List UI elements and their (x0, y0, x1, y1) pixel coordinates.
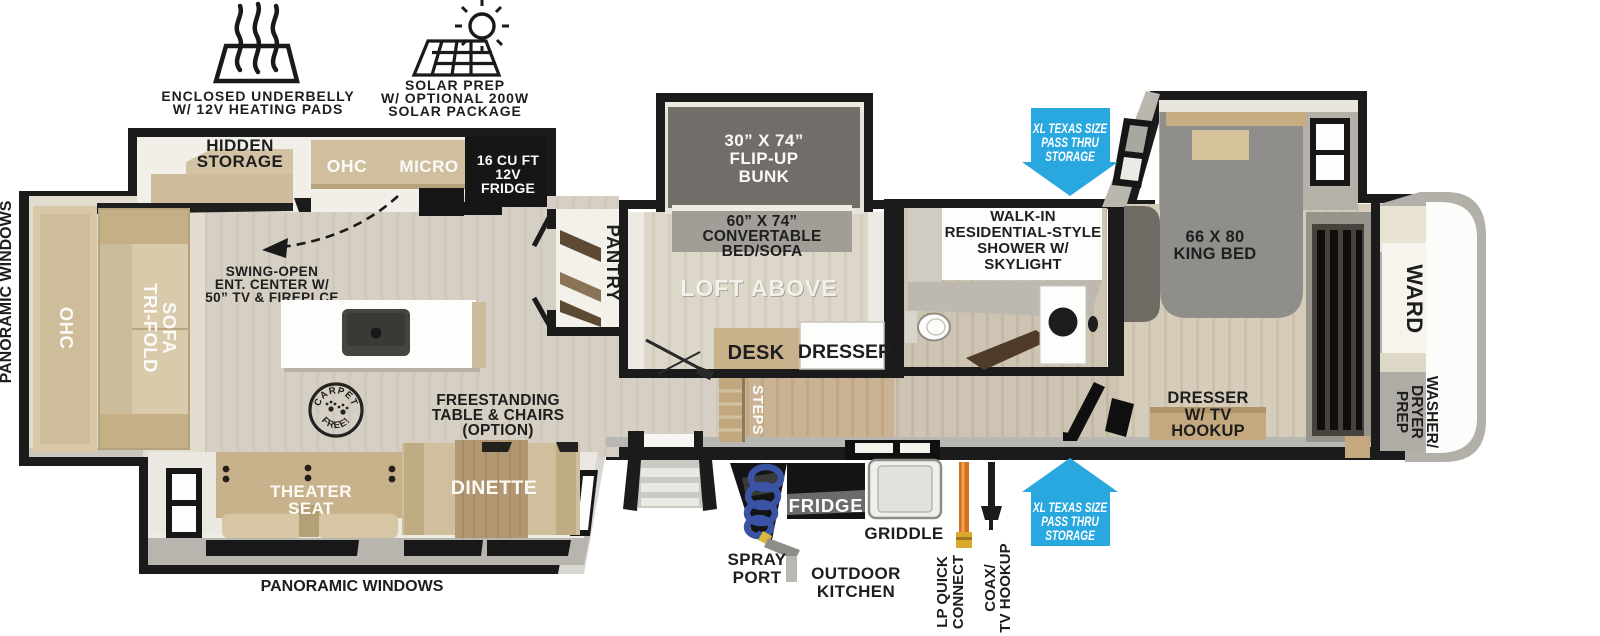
svg-text:BED/SOFA: BED/SOFA (722, 243, 803, 260)
svg-text:HOOKUP: HOOKUP (1171, 422, 1245, 440)
svg-text:PANORAMIC WINDOWS: PANORAMIC WINDOWS (0, 200, 15, 383)
svg-text:OHC: OHC (56, 307, 77, 350)
svg-text:PORT: PORT (733, 568, 782, 587)
svg-text:30” X 74”: 30” X 74” (724, 131, 803, 150)
svg-text:MICRO: MICRO (399, 157, 458, 176)
svg-text:LOFT ABOVE: LOFT ABOVE (680, 275, 837, 301)
svg-text:PANORAMIC WINDOWS: PANORAMIC WINDOWS (261, 578, 444, 595)
svg-text:GRIDDLE: GRIDDLE (864, 524, 943, 543)
svg-text:STORAGE: STORAGE (197, 152, 284, 171)
svg-text:RESIDENTIAL-STYLE: RESIDENTIAL-STYLE (945, 224, 1102, 241)
svg-text:SEAT: SEAT (288, 499, 334, 518)
svg-text:STORAGE: STORAGE (1045, 527, 1095, 543)
svg-text:WALK-IN: WALK-IN (990, 208, 1056, 225)
svg-text:SOFA: SOFA (159, 302, 180, 354)
svg-text:SOLAR PACKAGE: SOLAR PACKAGE (388, 103, 522, 119)
svg-text:FRIDGE: FRIDGE (789, 495, 864, 516)
svg-text:DRESSER: DRESSER (798, 341, 892, 363)
svg-text:OHC: OHC (327, 156, 367, 176)
svg-text:BUNK: BUNK (739, 167, 790, 186)
svg-text:TV HOOKUP: TV HOOKUP (997, 543, 1014, 632)
svg-text:TRI-FOLD: TRI-FOLD (140, 283, 161, 373)
svg-text:CONNECT: CONNECT (950, 555, 967, 629)
svg-text:DRESSER: DRESSER (1167, 389, 1248, 407)
svg-text:SPRAY: SPRAY (727, 550, 786, 569)
svg-text:FRIDGE: FRIDGE (481, 180, 535, 196)
svg-text:PREP: PREP (1393, 391, 1410, 433)
svg-text:WARD: WARD (1402, 264, 1427, 333)
svg-text:(OPTION): (OPTION) (462, 422, 533, 439)
svg-text:OUTDOOR: OUTDOOR (811, 564, 901, 583)
svg-text:SKYLIGHT: SKYLIGHT (984, 256, 1061, 273)
svg-text:KITCHEN: KITCHEN (817, 582, 895, 601)
svg-text:KING BED: KING BED (1173, 245, 1256, 263)
svg-text:STORAGE: STORAGE (1045, 148, 1095, 164)
svg-text:SHOWER W/: SHOWER W/ (977, 240, 1069, 257)
svg-text:DINETTE: DINETTE (451, 477, 537, 499)
svg-text:DESK: DESK (728, 342, 785, 364)
svg-text:W/ 12V HEATING PADS: W/ 12V HEATING PADS (173, 101, 344, 117)
svg-text:FLIP-UP: FLIP-UP (730, 149, 799, 168)
svg-text:STEPS: STEPS (749, 385, 765, 435)
svg-text:66 X 80: 66 X 80 (1186, 228, 1245, 246)
svg-text:LP QUICK: LP QUICK (934, 556, 951, 628)
